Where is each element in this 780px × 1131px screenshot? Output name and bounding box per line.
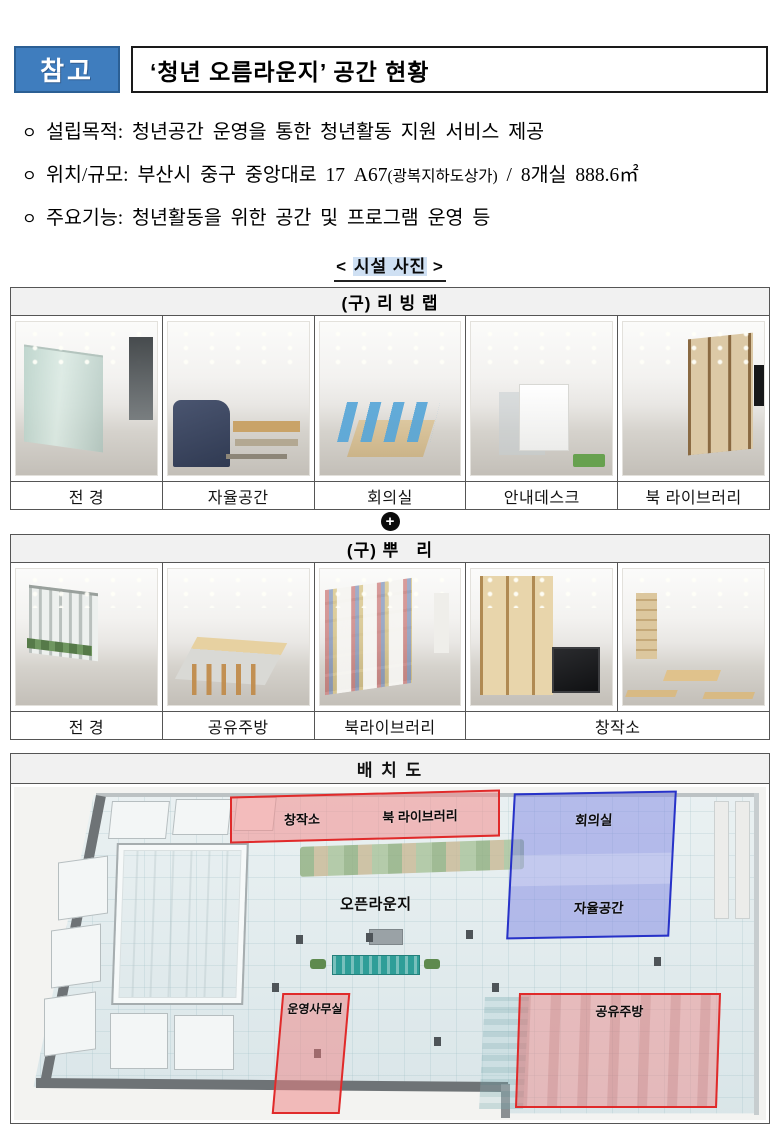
floorplan-plant: [424, 959, 440, 969]
caption: 안내데스크: [466, 482, 618, 510]
zone-shared-kitchen: 공유주방: [515, 993, 721, 1108]
ceiling-lights: [477, 327, 607, 367]
photo-creative-studio-1: [470, 568, 613, 706]
layout-table: 배 치 도: [10, 753, 770, 1124]
photo-row: [11, 316, 770, 482]
floorplan-counter: [369, 929, 403, 945]
ceiling-lights: [22, 327, 152, 367]
floorplan-column: [714, 801, 729, 919]
zone-label-operations-office: 운영사무실: [287, 1000, 344, 1017]
facility-table-livinglab: (구) 리 빙 랩 전 경 자율공간 회의실 안내데스크 북 라이브러리: [10, 287, 770, 510]
floorplan-column: [735, 801, 750, 919]
bullet-location: ㅇ위치/규모: 부산시 중구 중앙대로 17 A67(광복지하도상가) / 8개…: [22, 155, 762, 198]
document-header: 참고 ‘청년 오름라운지’ 공간 현황: [14, 46, 768, 93]
bullet-marker: ㅇ: [22, 113, 46, 155]
zone-label-book-library: 북 라이브러리: [382, 805, 457, 826]
photo-info-desk: [470, 321, 613, 476]
floorplan-pillar: [654, 957, 661, 966]
caption: 공유주방: [162, 712, 314, 740]
ceiling-lights: [477, 573, 607, 608]
reference-badge: 참고: [14, 46, 120, 93]
floorplan-pillar: [272, 983, 279, 992]
section-heading-text: < 시설 사진 >: [334, 252, 446, 282]
photo-free-space: [167, 321, 310, 476]
photo-panorama-livinglab: [15, 321, 158, 476]
caption: 자율공간: [162, 482, 314, 510]
angle-close: >: [433, 257, 444, 276]
bullet-text: 위치/규모: 부산시 중구 중앙대로 17 A67: [46, 165, 388, 186]
bullet-text: / 8개실 888.6㎡: [498, 165, 639, 186]
bullet-text: 주요기능: 청년활동을 위한 공간 및 프로그램 운영 등: [46, 208, 490, 229]
floorplan-pillar: [366, 933, 373, 942]
caption-row: 전 경 공유주방 북라이브러리 창작소: [11, 712, 770, 740]
zone-operations-office: 운영사무실: [272, 993, 351, 1114]
bullet-text: 설립목적: 청년공간 운영을 통한 청년활동 지원 서비스 제공: [46, 122, 544, 143]
caption: 창작소: [466, 712, 770, 740]
photo-creative-studio-2: [622, 568, 765, 706]
caption: 전 경: [11, 482, 163, 510]
photo-meeting-room: [319, 321, 462, 476]
zone-label-meeting-room: 회의실: [575, 809, 613, 830]
floorplan-room: [110, 1013, 168, 1069]
floorplan-room: [172, 799, 232, 835]
bullet-function: ㅇ주요기능: 청년활동을 위한 공간 및 프로그램 운영 등: [22, 198, 762, 241]
photo-panorama-ppuri: [15, 568, 158, 706]
ceiling-lights: [325, 573, 455, 608]
zone-label-free-space: 자율공간: [573, 896, 624, 917]
section-label: 시설 사진: [353, 257, 427, 276]
floorplan-pillar: [296, 935, 303, 944]
section-heading: < 시설 사진 >: [0, 252, 780, 282]
bullet-marker: ㅇ: [22, 199, 46, 241]
floorplan-plant: [310, 959, 326, 969]
floorplan-room: [174, 1015, 234, 1070]
caption-row: 전 경 자율공간 회의실 안내데스크 북 라이브러리: [11, 482, 770, 510]
ceiling-lights: [22, 573, 152, 608]
floorplan-room: [108, 801, 170, 839]
table-title: 배 치 도: [11, 754, 770, 784]
ceiling-lights: [173, 327, 303, 367]
floorplan-pillar: [466, 930, 473, 939]
floorplan-central-block: [111, 843, 249, 1005]
photo-row: [11, 563, 770, 712]
facility-table-ppuri: (구) 뿌 리 전 경 공유주방 북라이브러리 창작소: [10, 534, 770, 740]
angle-open: <: [336, 257, 347, 276]
document-page: 참고 ‘청년 오름라운지’ 공간 현황 ㅇ설립목적: 청년공간 운영을 통한 청…: [0, 0, 780, 1131]
bullet-purpose: ㅇ설립목적: 청년공간 운영을 통한 청년활동 지원 서비스 제공: [22, 112, 762, 155]
floorplan-pillar: [434, 1037, 441, 1046]
photo-shared-kitchen: [167, 568, 310, 706]
ceiling-lights: [173, 573, 303, 608]
ceiling-lights: [325, 327, 455, 367]
caption: 전 경: [11, 712, 163, 740]
zone-label-creative-studio: 창작소: [284, 808, 320, 828]
page-title: ‘청년 오름라운지’ 공간 현황: [131, 46, 768, 93]
bullet-marker: ㅇ: [22, 156, 46, 198]
floor-plan: 창작소 북 라이브러리 회의실 자율공간 오픈라운지 운영사무실 공유주방: [14, 787, 766, 1120]
caption: 북라이브러리: [314, 712, 466, 740]
caption: 북 라이브러리: [618, 482, 770, 510]
floorplan-room: [51, 923, 101, 988]
floorplan-room: [44, 991, 96, 1056]
floorplan-pillar: [492, 983, 499, 992]
zone-label-shared-kitchen: 공유주방: [595, 1001, 644, 1020]
bullet-text-small: (광복지하도상가): [388, 168, 498, 185]
floorplan-wall: [754, 793, 759, 1115]
caption: 회의실: [314, 482, 466, 510]
photo-book-library: [622, 321, 765, 476]
floorplan-water-feature: [332, 955, 420, 975]
floorplan-room: [58, 855, 108, 920]
photo-book-library-2: [319, 568, 462, 706]
zone-meeting-free-space: 회의실 자율공간: [506, 791, 677, 940]
ceiling-lights: [629, 327, 759, 367]
plus-icon: +: [381, 512, 400, 531]
plus-divider: +: [0, 512, 780, 531]
summary-list: ㅇ설립목적: 청년공간 운영을 통한 청년활동 지원 서비스 제공 ㅇ위치/규모…: [22, 112, 762, 241]
table-title: (구) 리 빙 랩: [11, 288, 770, 316]
zone-label-open-lounge: 오픈라운지: [340, 893, 412, 914]
ceiling-lights: [629, 573, 759, 608]
table-title: (구) 뿌 리: [11, 535, 770, 563]
zone-creative-studio-library: 창작소 북 라이브러리: [230, 789, 500, 843]
